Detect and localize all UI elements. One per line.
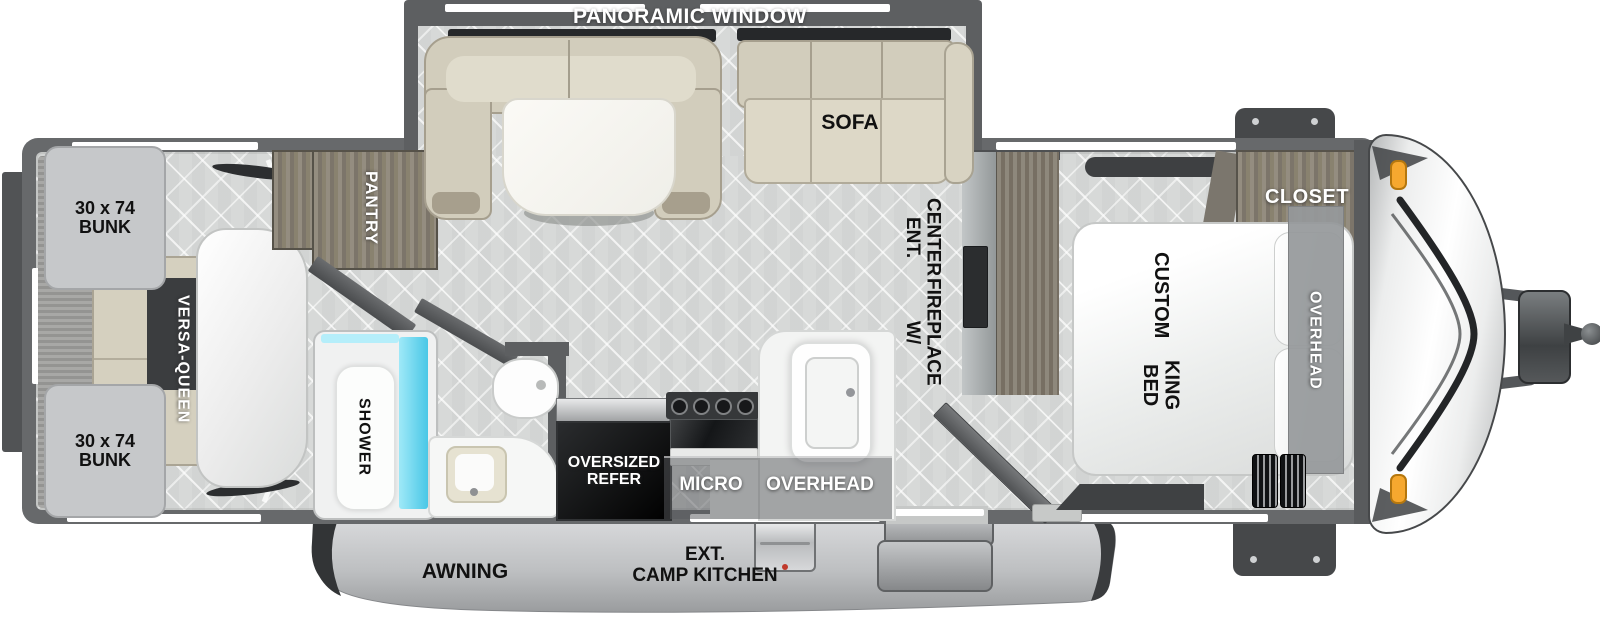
- floorplan-canvas: PANORAMIC WINDOW 30 x 74 BUNK 30 x 74 BU…: [0, 0, 1600, 636]
- refer-label-line1: OVERSIZED: [568, 454, 660, 471]
- screw-icon: [1311, 118, 1318, 125]
- bunk-top-label-word: BUNK: [79, 218, 131, 237]
- marker-light-icon: [1390, 160, 1407, 190]
- bed-foot-dresser: [1056, 484, 1204, 510]
- screw-icon: [1252, 118, 1259, 125]
- burner-icon: [671, 398, 688, 415]
- vanity-sink: [446, 446, 507, 503]
- bunk-bottom-label-size: 30 x 74: [75, 432, 135, 451]
- window-top-bedroom: [996, 142, 1236, 150]
- faucet-icon: [470, 488, 478, 496]
- screw-icon: [1250, 556, 1257, 563]
- bunk-bottom: 30 x 74 BUNK: [44, 384, 166, 518]
- camp-kitchen-label-line1: EXT.: [685, 545, 725, 566]
- cushion-seam: [881, 42, 883, 106]
- bunk-top: 30 x 74 BUNK: [44, 146, 166, 290]
- camp-kitchen-label: EXT. CAMP KITCHEN: [615, 544, 795, 588]
- pantry-label: PANTRY: [356, 152, 386, 264]
- ent-center-label-line2: W/ FIREPLACE: [901, 278, 942, 386]
- burner-icon: [693, 398, 710, 415]
- kitchen-overhead-label: OVERHEAD: [756, 474, 884, 496]
- refer-label-line2: REFER: [587, 471, 641, 488]
- camp-kitchen-label-line2: CAMP KITCHEN: [632, 566, 777, 587]
- front-cap-graphics: [1370, 136, 1504, 532]
- entry-door-opening: [886, 506, 988, 524]
- bed-step: [1280, 454, 1306, 508]
- bunk-bottom-label-word: BUNK: [79, 451, 131, 470]
- dinette-arm-cap: [432, 192, 480, 214]
- toilet: [492, 358, 559, 419]
- entry-step-lower: [877, 540, 993, 592]
- cushion-seam: [568, 40, 570, 104]
- awning-label: AWNING: [395, 560, 535, 584]
- oven-window: [670, 419, 758, 450]
- kitchen-sink: [790, 342, 872, 464]
- kitchen-sink-basin: [805, 357, 859, 449]
- window-bottom-bedroom: [1076, 514, 1268, 522]
- ent-center-label-line1: ENT. CENTER: [901, 196, 942, 278]
- burner-icon: [737, 398, 754, 415]
- panoramic-window-label: PANORAMIC WINDOW: [520, 6, 860, 28]
- dinette-cushion: [446, 56, 696, 102]
- burner-icon: [715, 398, 732, 415]
- entry-door-threshold: [890, 509, 984, 516]
- sofa-arm: [944, 42, 974, 184]
- shower-label: SHOWER: [350, 370, 378, 504]
- rear-wardrobe: [272, 150, 316, 250]
- dinette-table: [502, 98, 676, 216]
- faucet-icon: [846, 388, 855, 397]
- ent-center-cabinet: [996, 152, 1059, 395]
- ent-center-label: ENT. CENTER W/ FIREPLACE: [884, 196, 960, 386]
- propane-tank-cover: [1518, 290, 1571, 384]
- sofa-label: SOFA: [790, 112, 910, 134]
- bunk-top-label-size: 30 x 74: [75, 199, 135, 218]
- front-cap: [1368, 134, 1506, 534]
- bed-step: [1252, 454, 1278, 508]
- toilet-flush-icon: [536, 380, 546, 390]
- screw-icon: [1313, 556, 1320, 563]
- bedroom-overhead-label: OVERHEAD: [1300, 250, 1330, 430]
- cushion-seam: [810, 42, 812, 106]
- versa-queen-label: VERSA-QUEEN: [168, 262, 198, 456]
- stove-cooktop: [666, 392, 760, 419]
- king-bed-label: CUSTOM KING BED: [1128, 252, 1192, 432]
- king-bed-label-line1: CUSTOM: [1149, 252, 1171, 338]
- refrigerator: OVERSIZED REFER: [556, 421, 672, 521]
- micro-label: MICRO: [672, 474, 750, 496]
- vanity-sink-basin: [455, 454, 494, 491]
- marker-light-icon: [1390, 474, 1407, 504]
- hitch-ball: [1581, 323, 1600, 345]
- tv-fireplace-inset: [963, 246, 988, 328]
- shower-glass-top: [321, 334, 399, 343]
- king-bed-label-line2: KING BED: [1138, 338, 1181, 432]
- versa-queen-mattress: [196, 228, 308, 488]
- shower-glass-panel: [399, 337, 428, 509]
